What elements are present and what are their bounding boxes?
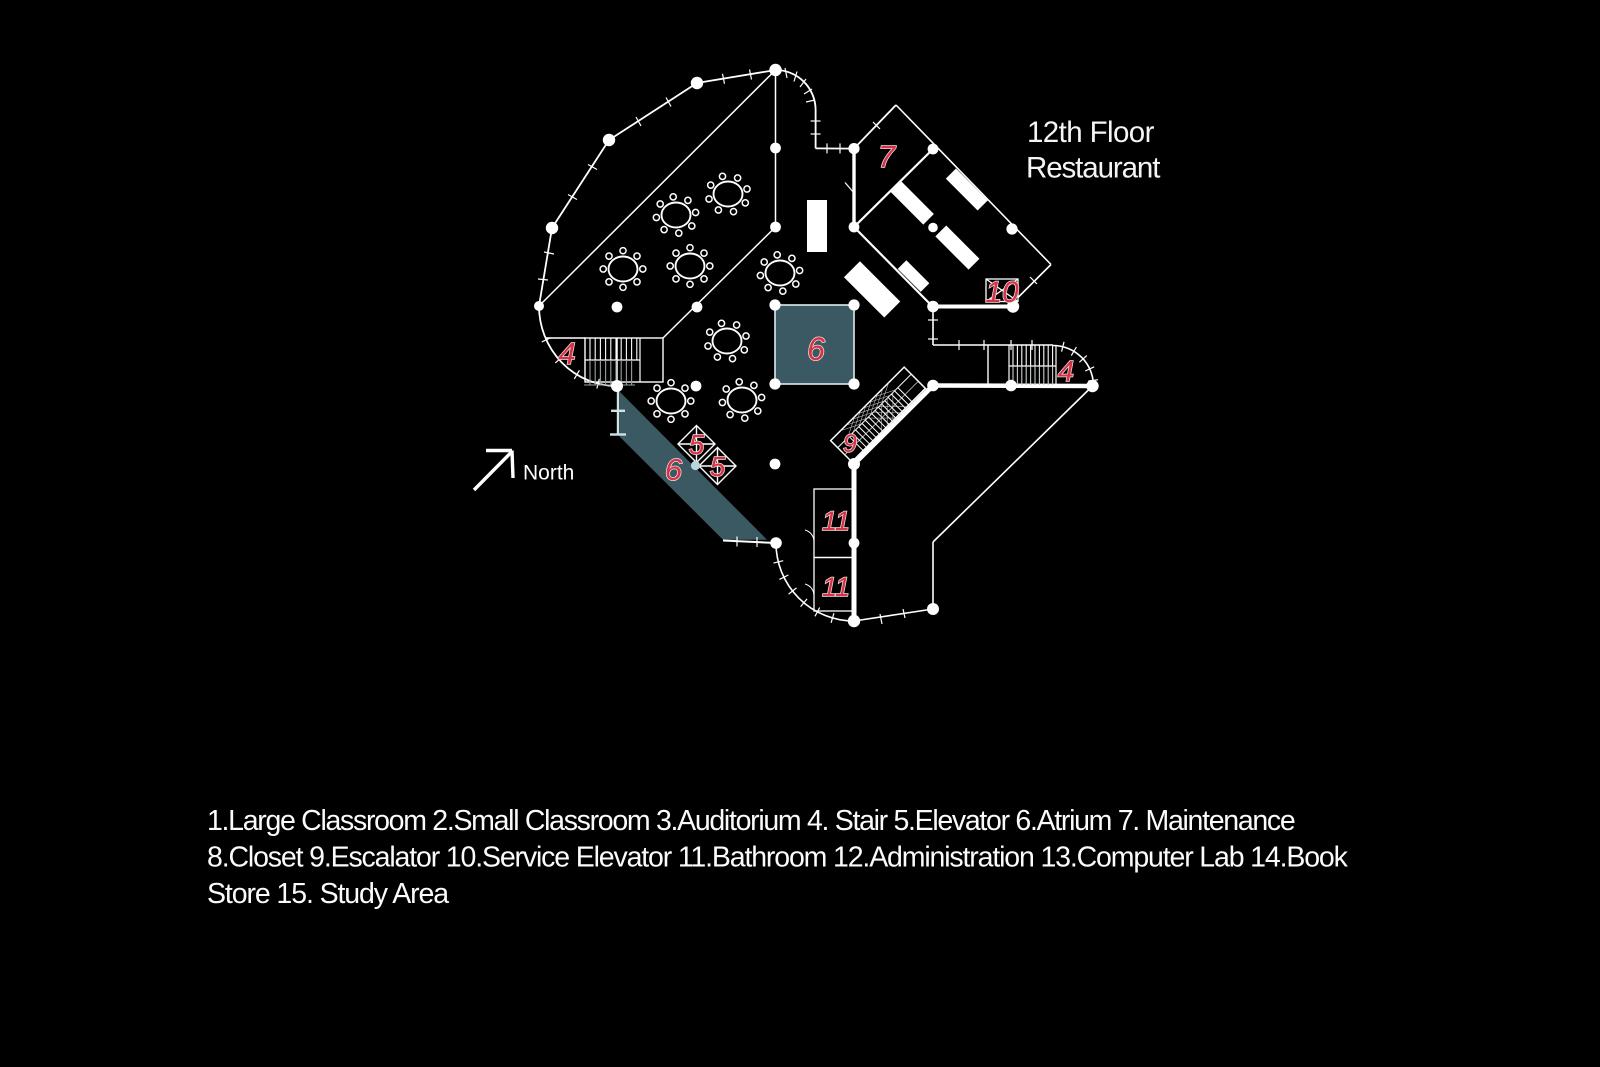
svg-text:5: 5: [710, 451, 726, 482]
svg-text:11: 11: [822, 572, 850, 602]
svg-text:10: 10: [985, 276, 1019, 309]
svg-text:Store 15. Study Area: Store 15. Study Area: [207, 878, 449, 910]
svg-text:9: 9: [843, 430, 857, 458]
svg-text:12th Floor: 12th Floor: [1027, 116, 1155, 149]
svg-text:5: 5: [689, 429, 705, 460]
svg-text:8.Closet 9.Escalator 10.Servic: 8.Closet 9.Escalator 10.Service Elevator…: [207, 842, 1349, 874]
svg-text:7: 7: [878, 139, 897, 174]
svg-text:6: 6: [807, 331, 825, 367]
svg-text:Restaurant: Restaurant: [1026, 152, 1160, 185]
svg-text:1.Large Classroom 2.Small Clas: 1.Large Classroom 2.Small Classroom 3.Au…: [207, 805, 1295, 837]
svg-text:6: 6: [665, 452, 683, 487]
svg-text:11: 11: [822, 506, 850, 536]
svg-text:4: 4: [1058, 356, 1074, 388]
svg-text:4: 4: [558, 336, 575, 371]
svg-text:North: North: [523, 462, 574, 485]
